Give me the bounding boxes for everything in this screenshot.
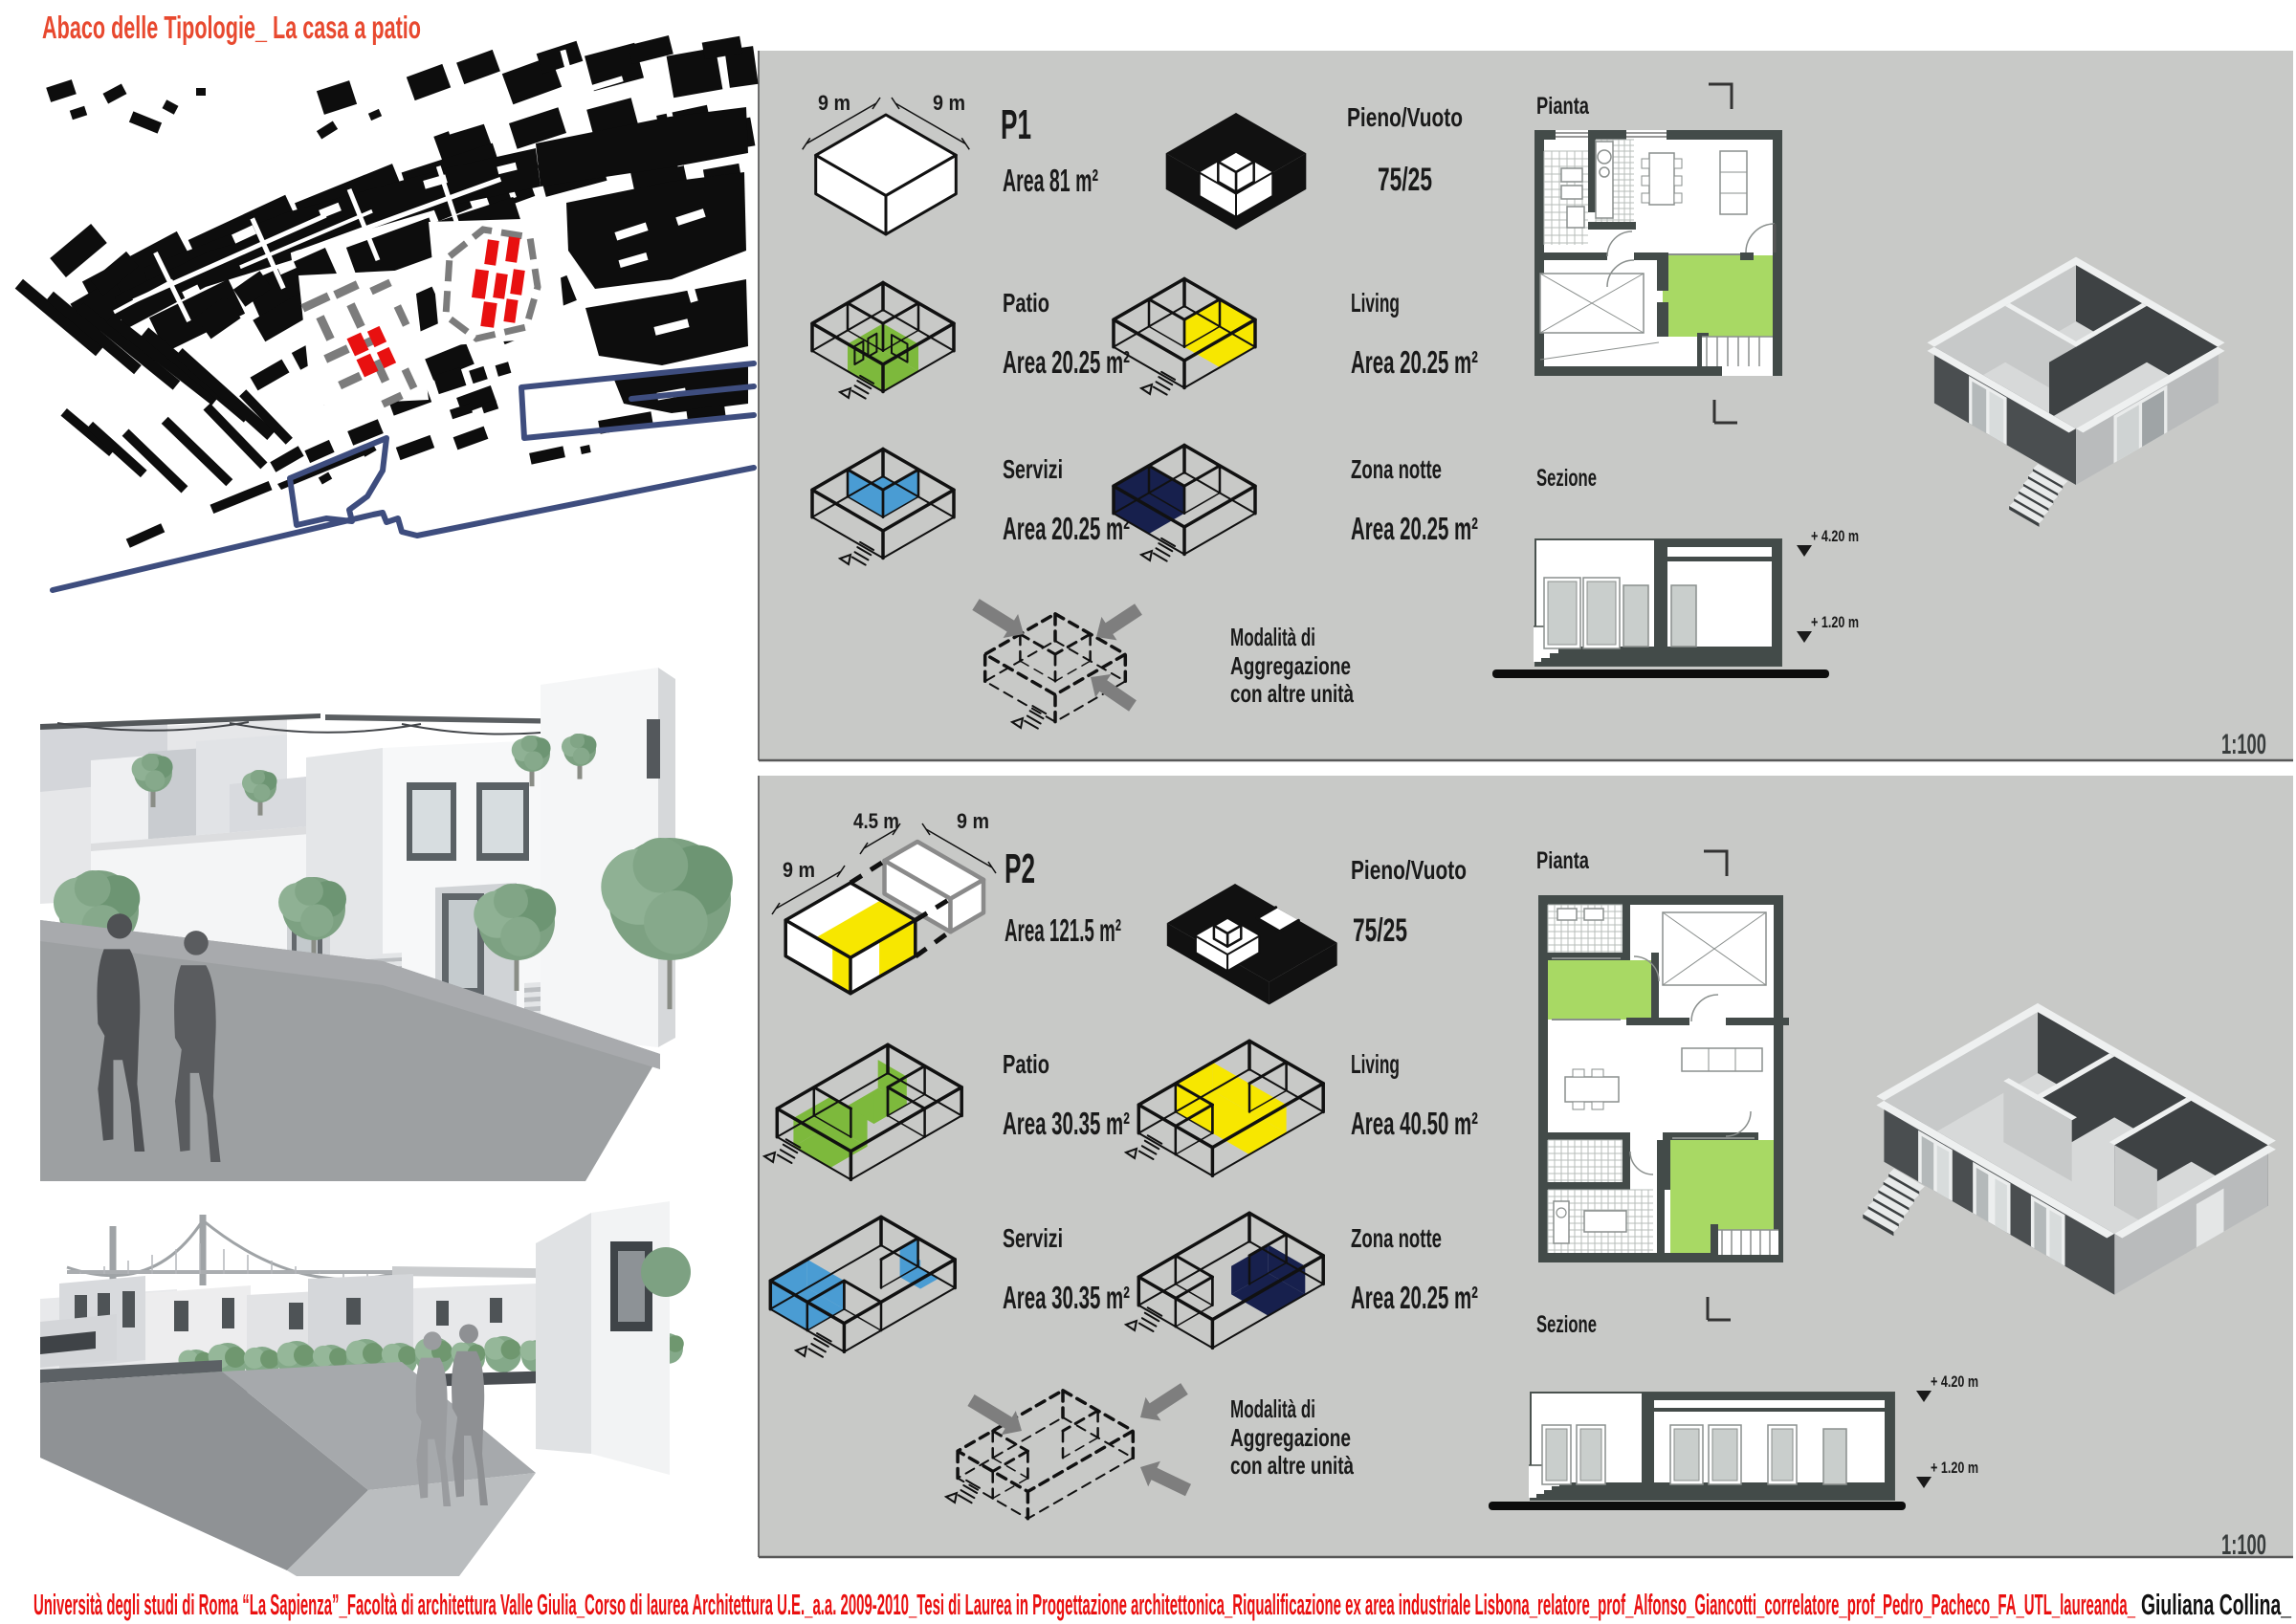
svg-text:75/25: 75/25 <box>1353 912 1407 949</box>
svg-text:Living: Living <box>1351 288 1400 318</box>
svg-text:9 m: 9 m <box>783 858 815 882</box>
svg-text:Aggregazione: Aggregazione <box>1230 651 1351 680</box>
svg-text:Area 20.25 m²: Area 20.25 m² <box>1351 1280 1478 1315</box>
svg-text:Giuliana Collina_: Giuliana Collina_ <box>2141 1588 2291 1621</box>
svg-text:Area 121.5 m²: Area 121.5 m² <box>1004 912 1121 948</box>
svg-text:Sezione: Sezione <box>1536 465 1597 492</box>
svg-text:Patio: Patio <box>1003 1049 1049 1079</box>
svg-text:Servizi: Servizi <box>1003 454 1063 484</box>
svg-text:P1: P1 <box>1001 101 1031 148</box>
svg-text:Servizi: Servizi <box>1003 1223 1063 1253</box>
svg-text:con altre unità: con altre unità <box>1230 1451 1354 1480</box>
svg-text:Abaco delle Tipologie_ La casa: Abaco delle Tipologie_ La casa a patio <box>42 10 421 45</box>
svg-text:Area 30.35 m²: Area 30.35 m² <box>1003 1280 1130 1315</box>
svg-text:Pieno/Vuoto: Pieno/Vuoto <box>1351 855 1467 885</box>
svg-text:Aggregazione: Aggregazione <box>1230 1423 1351 1452</box>
svg-text:Modalità di: Modalità di <box>1230 623 1315 651</box>
svg-text:+ 4.20 m: + 4.20 m <box>1931 1372 1978 1391</box>
svg-text:Area 40.50 m²: Area 40.50 m² <box>1351 1106 1478 1141</box>
svg-text:Zona notte: Zona notte <box>1351 1223 1442 1253</box>
svg-text:Zona notte: Zona notte <box>1351 454 1442 484</box>
svg-text:Sezione: Sezione <box>1536 1311 1597 1338</box>
svg-text:+ 1.20 m: + 1.20 m <box>1931 1459 1978 1477</box>
svg-text:9 m: 9 m <box>933 91 965 115</box>
svg-text:Area 20.25 m²: Area 20.25 m² <box>1003 511 1130 546</box>
svg-text:Area 20.25 m²: Area 20.25 m² <box>1351 511 1478 546</box>
svg-text:4.5 m: 4.5 m <box>853 809 899 833</box>
svg-text:P2: P2 <box>1004 845 1035 892</box>
svg-text:Pieno/Vuoto: Pieno/Vuoto <box>1347 102 1463 132</box>
svg-text:+ 4.20 m: + 4.20 m <box>1811 527 1859 545</box>
svg-text:75/25: 75/25 <box>1378 162 1432 198</box>
svg-text:Area 81 m²: Area 81 m² <box>1003 163 1098 198</box>
svg-text:9 m: 9 m <box>957 809 989 833</box>
svg-text:Patio: Patio <box>1003 288 1049 318</box>
svg-text:Modalità di: Modalità di <box>1230 1394 1315 1423</box>
svg-text:1:100: 1:100 <box>2221 1529 2266 1561</box>
svg-text:1:100: 1:100 <box>2221 729 2266 760</box>
svg-text:Pianta: Pianta <box>1536 847 1590 874</box>
svg-text:Area 20.25 m²: Area 20.25 m² <box>1003 344 1130 380</box>
svg-text:Pianta: Pianta <box>1536 93 1590 120</box>
svg-text:Area 20.25 m²: Area 20.25 m² <box>1351 344 1478 380</box>
svg-text:con altre unità: con altre unità <box>1230 679 1354 708</box>
svg-text:9 m: 9 m <box>818 91 850 115</box>
svg-text:+ 1.20 m: + 1.20 m <box>1811 613 1859 631</box>
svg-text:Living: Living <box>1351 1049 1400 1079</box>
svg-text:Area 30.35 m²: Area 30.35 m² <box>1003 1106 1130 1141</box>
svg-text:Università degli studi di Roma: Università degli studi di Roma “La Sapie… <box>33 1588 2135 1621</box>
